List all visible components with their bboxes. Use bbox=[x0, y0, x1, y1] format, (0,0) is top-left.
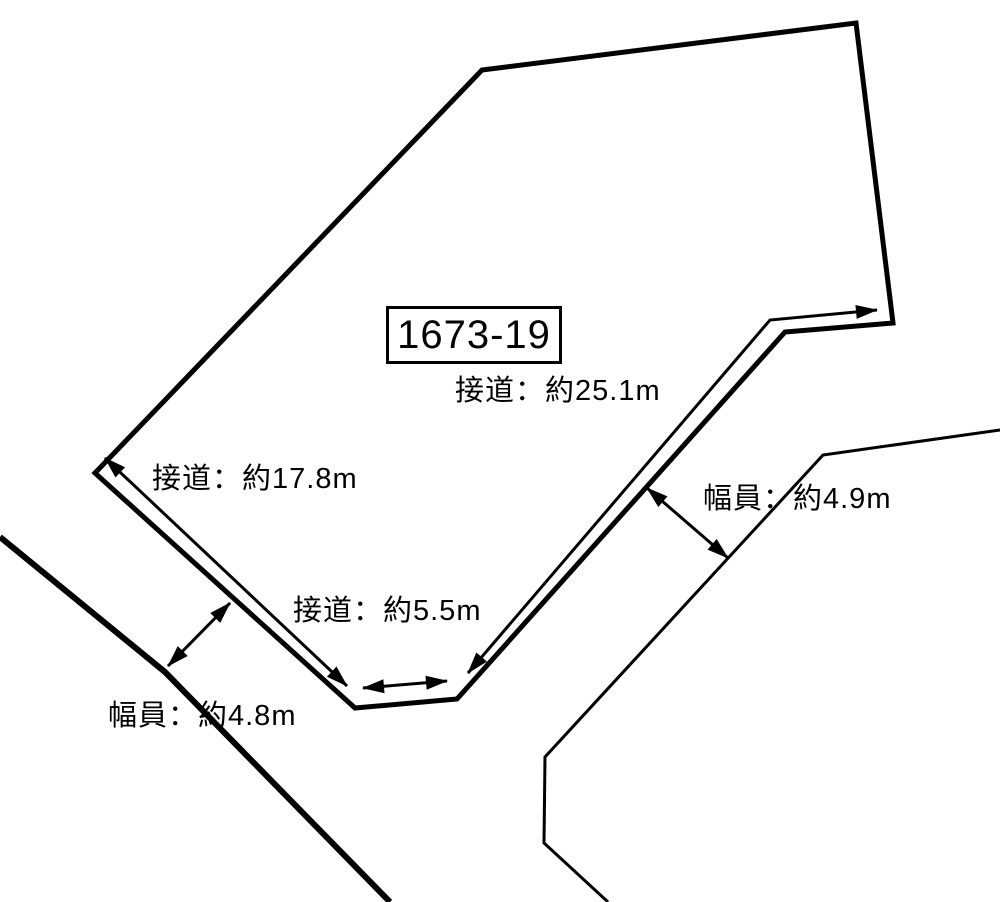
diagram-canvas bbox=[0, 0, 1000, 902]
parcel-number-text: 1673-19 bbox=[397, 313, 551, 358]
frontage-5-5-label: 接道：約5.5m bbox=[293, 596, 481, 628]
road-width-4-8-label: 幅員：約4.8m bbox=[108, 701, 296, 733]
frontage-17-8-label: 接道：約17.8m bbox=[152, 464, 358, 496]
road-width-4-9-label: 幅員：約4.9m bbox=[703, 484, 891, 516]
parcel-outline bbox=[95, 23, 893, 708]
land-plot-diagram: 1673-19 接道：約25.1m 接道：約17.8m 接道：約5.5m 幅員：… bbox=[0, 0, 1000, 902]
parcel-number-box: 1673-19 bbox=[386, 306, 562, 364]
dimension-arrow-road-width-4-8 bbox=[168, 603, 230, 666]
frontage-25-1-label: 接道：約25.1m bbox=[455, 376, 661, 408]
